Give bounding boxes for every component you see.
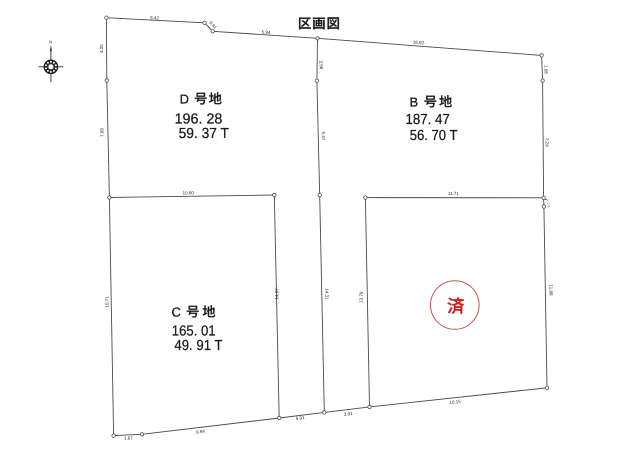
svg-text:13.78: 13.78 <box>358 291 363 303</box>
svg-text:15.71: 15.71 <box>105 296 110 308</box>
svg-text:B: B <box>410 94 419 109</box>
svg-text:7.68: 7.68 <box>100 128 105 137</box>
svg-text:5.47: 5.47 <box>321 131 326 140</box>
svg-text:14.31: 14.31 <box>324 288 329 300</box>
svg-text:187. 47: 187. 47 <box>406 112 450 128</box>
svg-text:C: C <box>172 304 181 319</box>
svg-text:9.94: 9.94 <box>196 429 206 435</box>
svg-text:14.97: 14.97 <box>274 288 279 300</box>
svg-text:49. 91 T: 49. 91 T <box>174 338 222 354</box>
svg-text:7.29: 7.29 <box>545 138 550 147</box>
svg-text:1.68: 1.68 <box>544 65 549 74</box>
svg-text:10.80: 10.80 <box>183 190 195 195</box>
svg-text:11.71: 11.71 <box>448 191 459 196</box>
svg-text:N: N <box>49 40 52 45</box>
svg-text:5.42: 5.42 <box>150 15 160 20</box>
svg-text:56. 70 T: 56. 70 T <box>410 128 458 144</box>
svg-text:0.9: 0.9 <box>546 203 550 208</box>
svg-text:2.58: 2.58 <box>318 60 323 70</box>
svg-text:165. 01: 165. 01 <box>172 324 216 340</box>
svg-text:1.67: 1.67 <box>124 435 133 440</box>
svg-text:D: D <box>180 91 189 106</box>
svg-text:16.92: 16.92 <box>413 40 425 46</box>
svg-text:59. 37 T: 59. 37 T <box>179 126 229 142</box>
svg-text:11.88: 11.88 <box>549 285 554 296</box>
svg-text:4.25: 4.25 <box>99 44 104 53</box>
svg-text:5.94: 5.94 <box>262 29 272 35</box>
